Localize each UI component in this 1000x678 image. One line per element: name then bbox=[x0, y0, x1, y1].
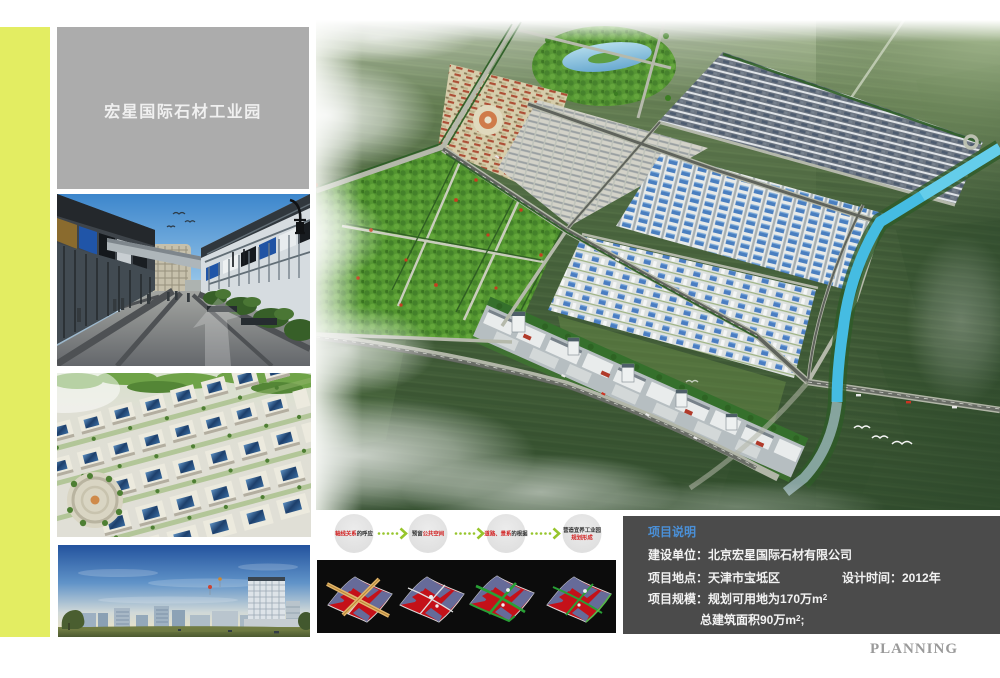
svg-text:规划形成: 规划形成 bbox=[571, 534, 593, 542]
svg-text:轴线关系的呼应: 轴线关系的呼应 bbox=[335, 530, 373, 538]
svg-text:预留公共空间: 预留公共空间 bbox=[412, 530, 445, 538]
svg-text:营造宜养工业园: 营造宜养工业园 bbox=[563, 526, 601, 534]
svg-text:道路、景系的根据: 道路、景系的根据 bbox=[484, 530, 528, 538]
